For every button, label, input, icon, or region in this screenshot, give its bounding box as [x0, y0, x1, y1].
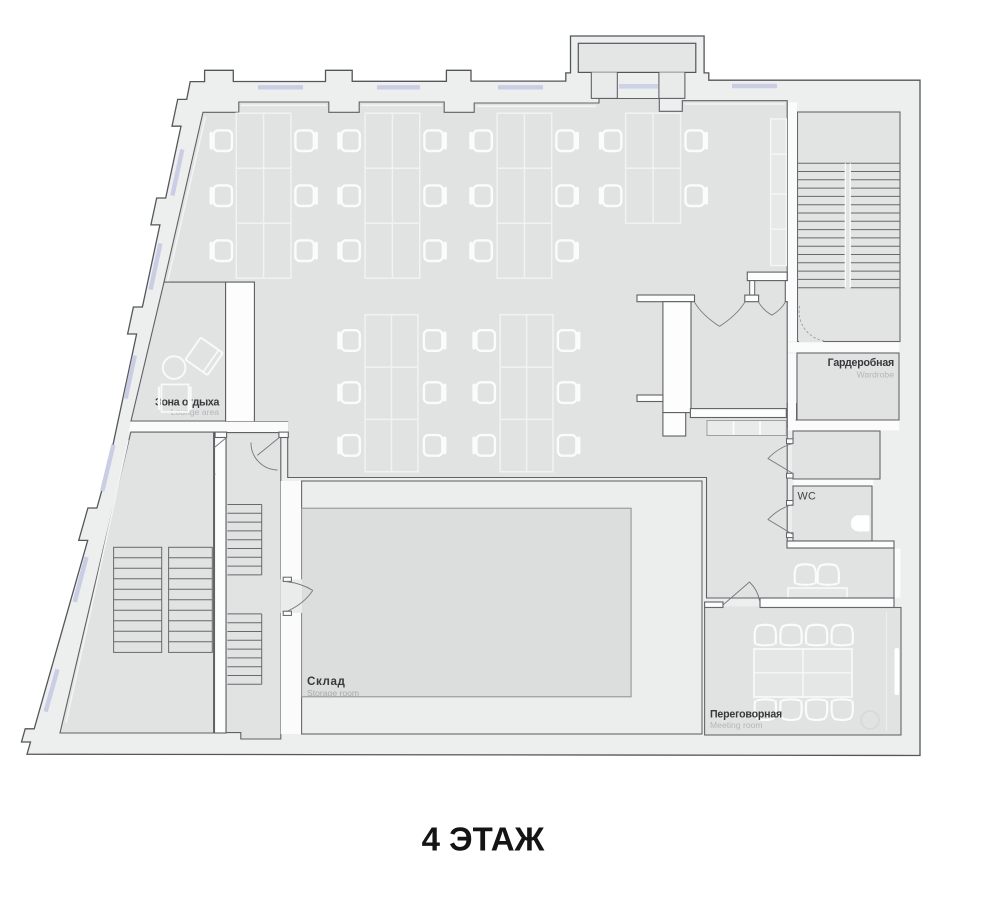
- svg-text:Wardrobe: Wardrobe: [857, 370, 895, 380]
- svg-text:Meeting room: Meeting room: [710, 720, 763, 730]
- svg-text:Гардеробная: Гардеробная: [828, 357, 894, 369]
- svg-text:4 ЭТАЖ: 4 ЭТАЖ: [422, 821, 545, 858]
- svg-text:Переговорная: Переговорная: [710, 709, 782, 721]
- svg-text:WC: WC: [798, 491, 817, 503]
- svg-text:Storage room: Storage room: [307, 688, 359, 698]
- svg-text:Склад: Склад: [307, 675, 346, 688]
